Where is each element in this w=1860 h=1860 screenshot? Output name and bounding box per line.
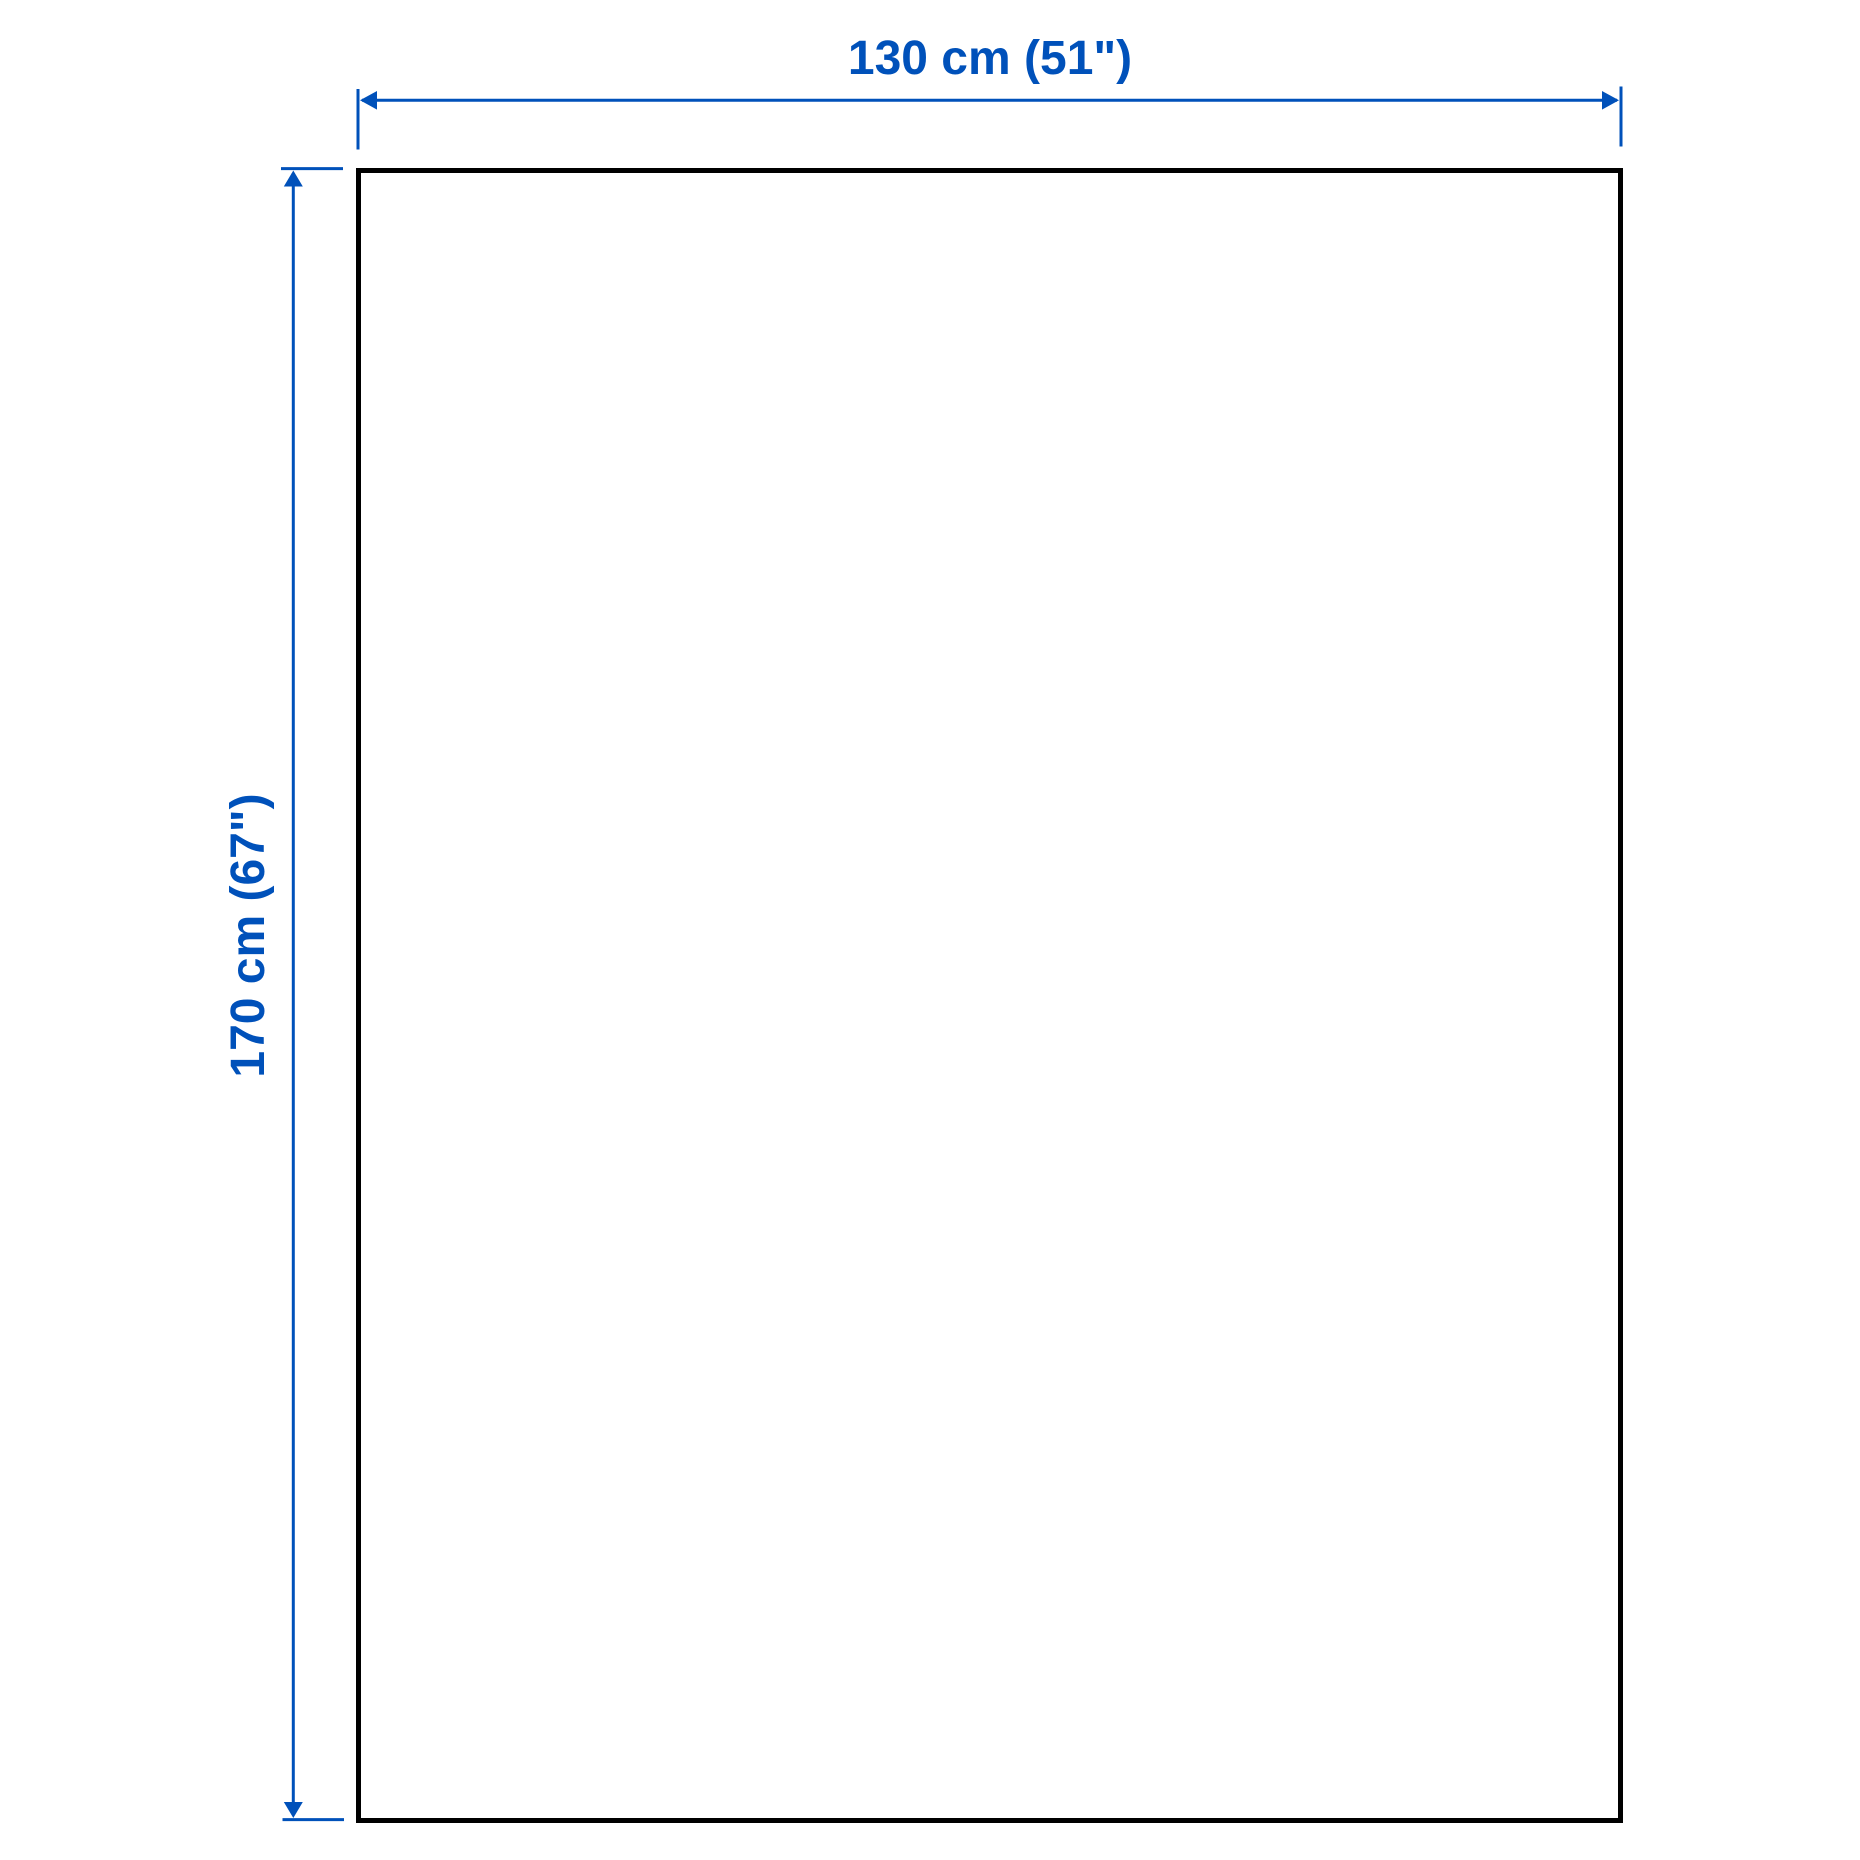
svg-text:130 cm (51"): 130 cm (51") — [848, 32, 1132, 85]
svg-text:170 cm (67"): 170 cm (67") — [222, 793, 275, 1077]
